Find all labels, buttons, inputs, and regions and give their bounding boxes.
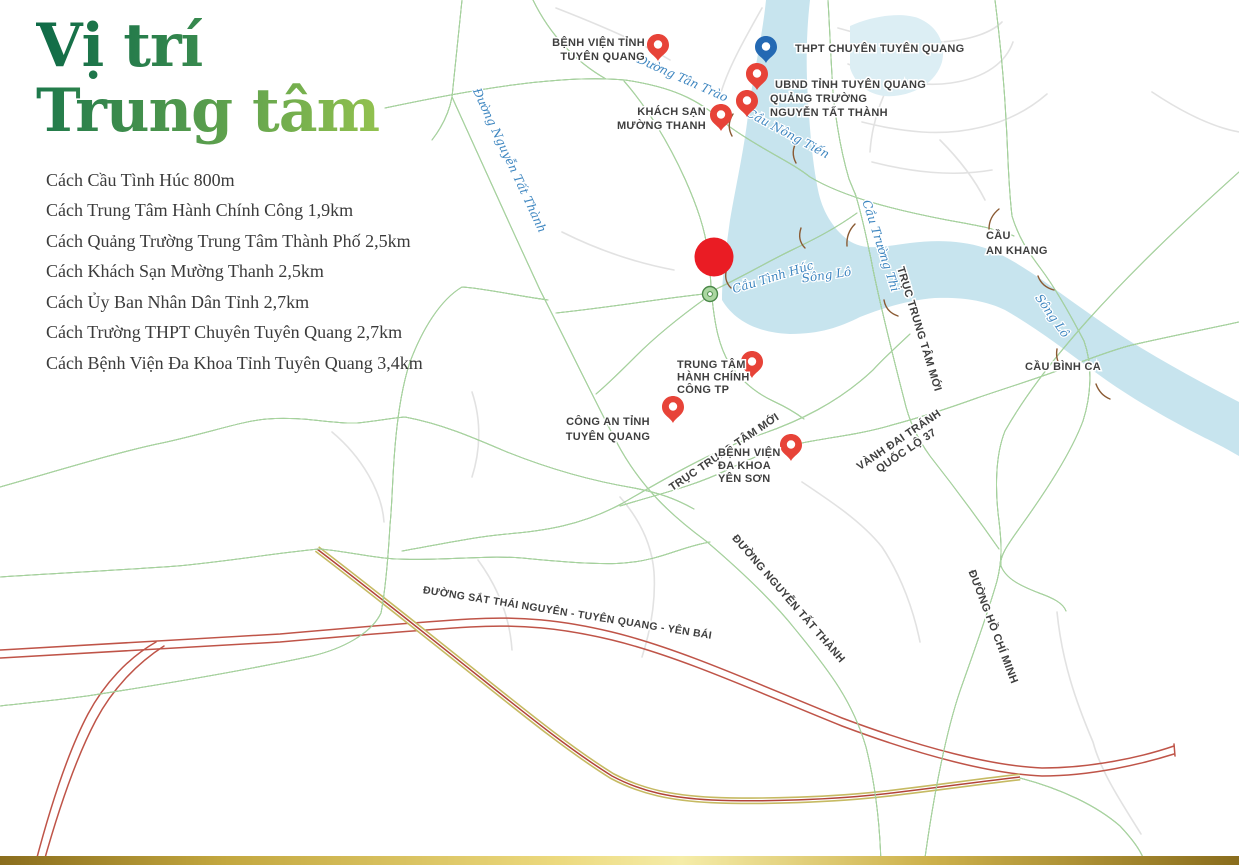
poi-label-benh-vien-yen-son: BỆNH VIỆNĐA KHOAYÊN SƠN [718,446,781,485]
label-cau-an-khang: CẦUAN KHANG [986,229,1048,257]
label-duong-ho-chi-minh: ĐƯỜNG HỒ CHÍ MINH [966,568,1021,685]
distance-item: Cách Quảng Trường Trung Tâm Thành Phố 2,… [46,231,506,252]
label-duong-nguyen-tat-thanh-south: ĐƯỜNG NGUYỄN TẤT THÀNH [729,532,848,666]
roundabout [703,287,718,302]
poi-label-thpt-chuyen: THPT CHUYÊN TUYÊN QUANG [795,42,964,55]
title-line-2: Trung tâm [36,76,379,146]
title-line-1: Vị trí [36,11,202,81]
distance-item: Cách Ủy Ban Nhân Dân Tỉnh 2,7km [46,292,506,313]
label-cau-binh-ca: CẦU BÌNH CA [1025,360,1101,373]
distance-item: Cách Khách Sạn Mường Thanh 2,5km [46,261,506,282]
pin-benh-vien-yen-son [780,434,802,461]
poi-label-trung-tam-hanh-chinh: TRUNG TÂMHÀNH CHÍNHCÔNG TP [677,358,750,396]
distance-item: Cách Cầu Tình Húc 800m [46,170,506,191]
page-title: Vị tríTrung tâm [36,14,506,144]
distance-item: Cách Bệnh Viện Đa Khoa Tỉnh Tuyên Quang … [46,353,506,374]
gold-accent-bar [0,856,1239,865]
gold-railway-line [317,549,1020,801]
river-layer [722,0,1239,456]
poi-label-cong-an-tinh: CÔNG AN TỈNHTUYÊN QUANG [566,415,651,443]
label-duong-sat: ĐƯỜNG SẮT THÁI NGUYÊN - TUYÊN QUANG - YÊ… [422,583,713,642]
label-vanh-dai-tranh: VÀNH ĐAI TRÁNHQUỐC LỘ 37 [854,407,951,484]
distance-item: Cách Trung Tâm Hành Chính Công 1,9km [46,200,506,221]
project-location-dot [695,238,734,277]
label-duong-tan-trao: Đường Tân Trào [634,52,730,105]
pin-cong-an-tinh [662,396,684,423]
info-panel: Vị tríTrung tâm Cách Cầu Tình Húc 800m C… [36,14,506,383]
poi-label-benh-vien-tinh: BỆNH VIỆN TỈNHTUYÊN QUANG [552,36,645,63]
song-lo-river [722,0,1239,456]
distance-list: Cách Cầu Tình Húc 800m Cách Trung Tâm Hà… [46,170,506,374]
poi-label-ubnd-tinh: UBND TỈNH TUYÊN QUANG [775,78,926,91]
distance-item: Cách Trường THPT Chuyên Tuyên Quang 2,7k… [46,322,506,343]
poi-label-khach-san: KHÁCH SẠNMƯỜNG THANH [617,105,706,132]
location-map-poster: Đường Tân Trào Đường Nguyễn Tất Thành Cầ… [0,0,1239,865]
